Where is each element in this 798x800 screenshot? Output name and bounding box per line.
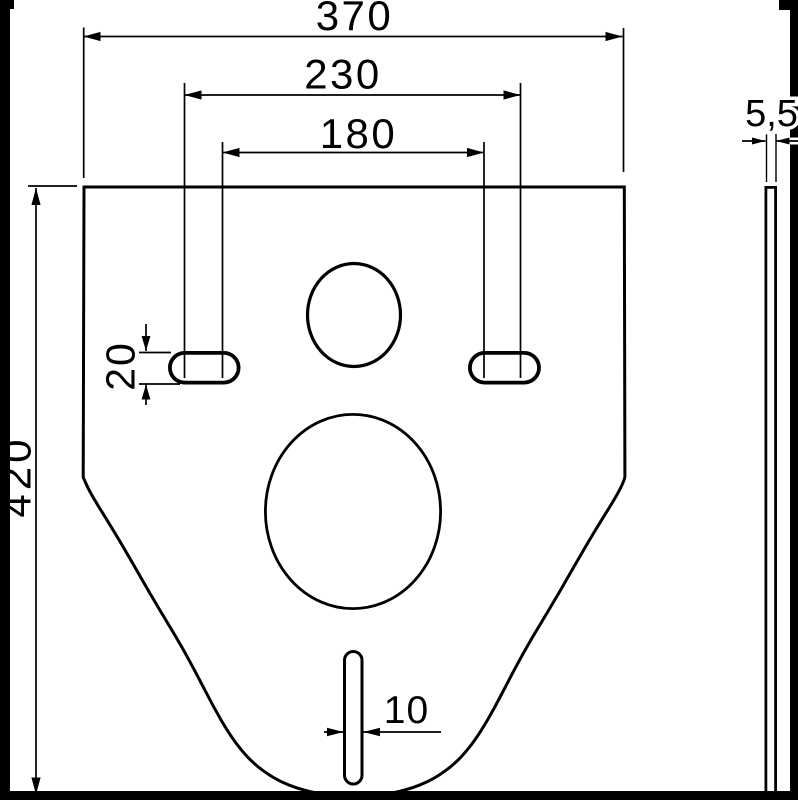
svg-text:370: 370: [316, 0, 394, 39]
svg-text:10: 10: [384, 689, 429, 732]
svg-text:230: 230: [304, 51, 382, 98]
svg-text:180: 180: [320, 110, 398, 157]
svg-text:420: 420: [0, 436, 40, 518]
svg-text:20: 20: [98, 341, 144, 391]
svg-text:5,5: 5,5: [745, 93, 798, 135]
